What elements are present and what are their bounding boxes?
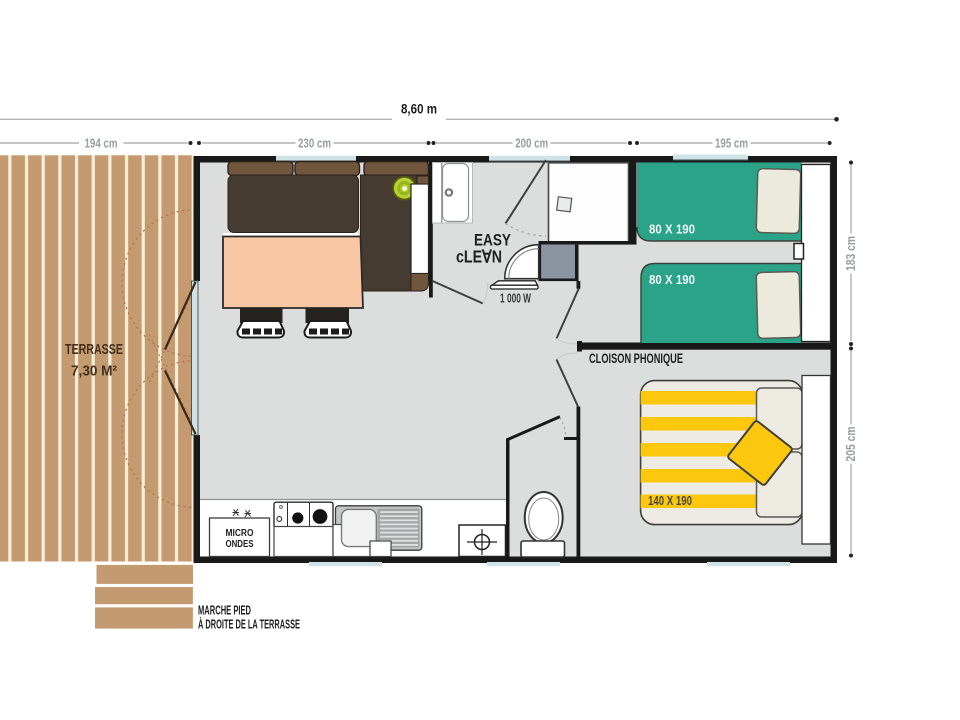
svg-text:1 000 W: 1 000 W	[500, 292, 531, 306]
svg-text:205 cm: 205 cm	[843, 427, 858, 462]
svg-text:TERRASSE: TERRASSE	[65, 342, 123, 358]
svg-text:183 cm: 183 cm	[843, 236, 858, 271]
svg-text:MARCHE PIED: MARCHE PIED	[198, 604, 251, 618]
svg-text:CLOISON PHONIQUE: CLOISON PHONIQUE	[589, 351, 683, 366]
svg-text:140 X 190: 140 X 190	[648, 493, 692, 508]
svg-text:ONDES: ONDES	[226, 538, 254, 550]
svg-text:200 cm: 200 cm	[515, 136, 548, 151]
svg-text:80 X 190: 80 X 190	[649, 272, 695, 287]
svg-text:80 X 190: 80 X 190	[649, 222, 695, 237]
svg-text:8,60 m: 8,60 m	[401, 101, 437, 117]
svg-text:195 cm: 195 cm	[715, 136, 748, 151]
svg-text:230 cm: 230 cm	[298, 136, 331, 151]
svg-text:À DROITE DE LA TERRASSE: À DROITE DE LA TERRASSE	[198, 617, 300, 632]
svg-text:7,30 M²: 7,30 M²	[71, 364, 117, 380]
svg-text:cLE∀N: cLE∀N	[456, 247, 502, 267]
svg-text:194 cm: 194 cm	[85, 136, 118, 151]
